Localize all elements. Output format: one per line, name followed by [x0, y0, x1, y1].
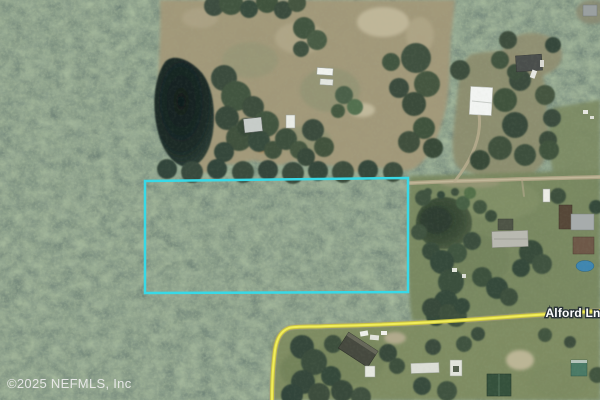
- watermark: ©2025 NEFMLS, Inc: [7, 376, 132, 391]
- image-grain: [0, 0, 600, 400]
- road-label: Alford Ln: [545, 306, 600, 320]
- aerial-map: Alford Ln ©2025 NEFMLS, Inc: [0, 0, 600, 400]
- aerial-map-image: Alford Ln ©2025 NEFMLS, Inc: [0, 0, 600, 400]
